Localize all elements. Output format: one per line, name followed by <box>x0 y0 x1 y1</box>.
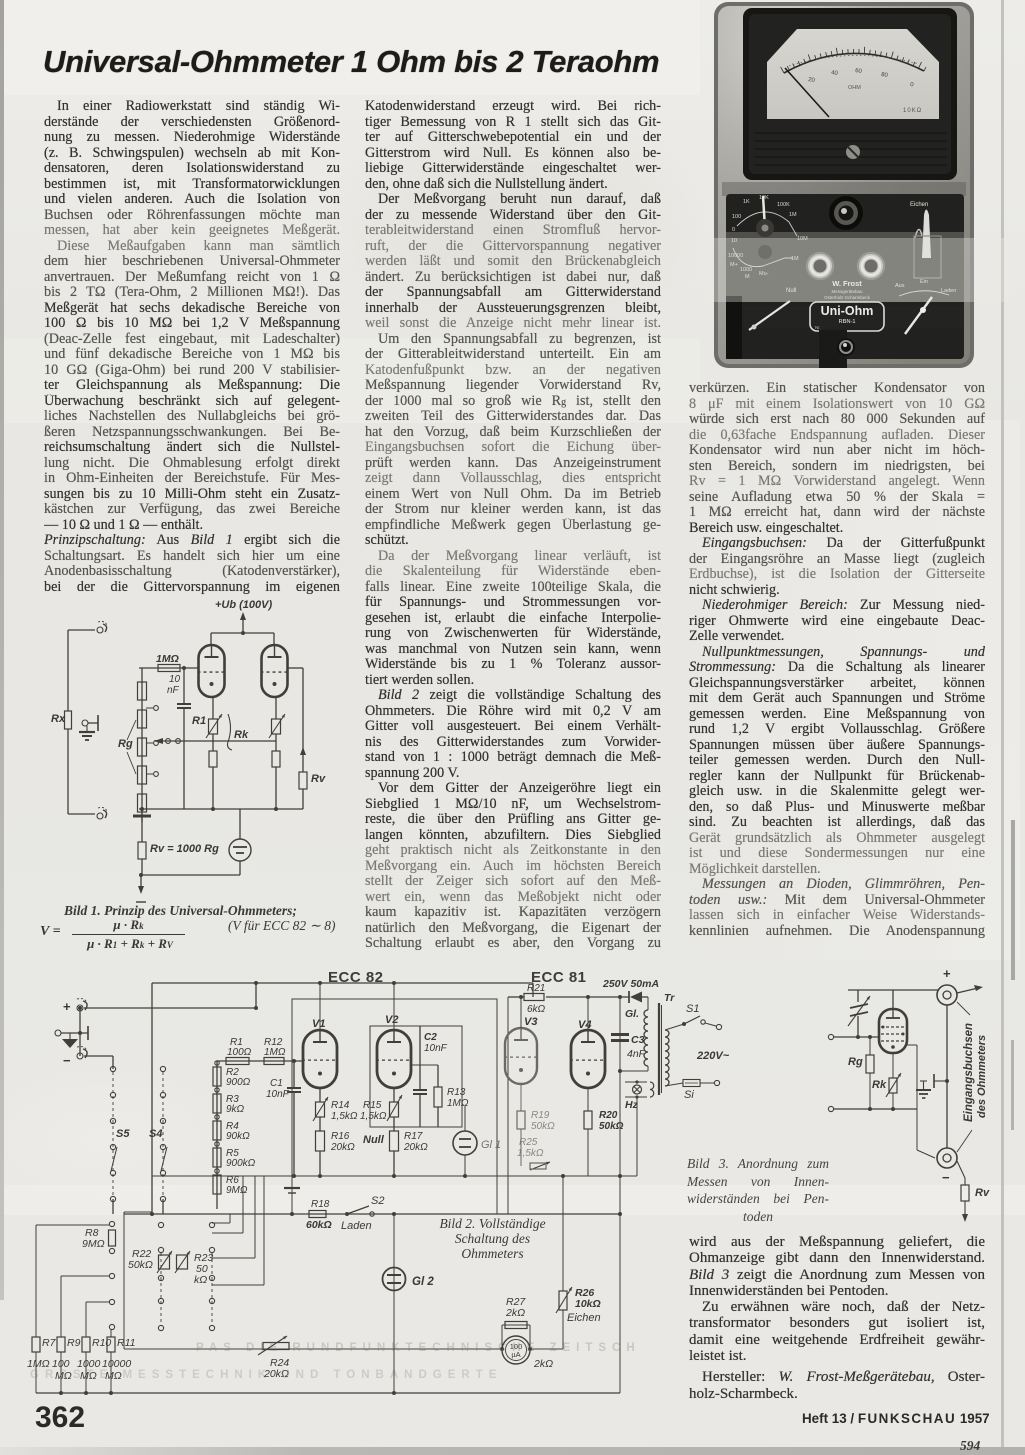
svg-text:9kΩ: 9kΩ <box>226 1104 245 1115</box>
svg-text:250V 50mA: 250V 50mA <box>602 978 659 990</box>
svg-text:R18: R18 <box>311 1199 330 1210</box>
svg-text:−: − <box>942 1170 950 1185</box>
svg-text:−: − <box>63 1053 71 1068</box>
svg-text:R13: R13 <box>447 1087 466 1098</box>
svg-text:90kΩ: 90kΩ <box>226 1131 250 1142</box>
svg-text:9MΩ: 9MΩ <box>226 1185 248 1196</box>
svg-text:Tr: Tr <box>664 992 675 1004</box>
svg-text:Eichen: Eichen <box>567 1312 601 1324</box>
svg-text:nF: nF <box>167 685 180 696</box>
svg-text:2kΩ: 2kΩ <box>505 1307 525 1319</box>
svg-text:10: 10 <box>169 674 181 685</box>
svg-text:10nF: 10nF <box>424 1043 448 1054</box>
svg-text:0: 0 <box>732 227 735 233</box>
svg-text:V2: V2 <box>385 1014 398 1026</box>
svg-text:S5: S5 <box>116 1128 130 1140</box>
svg-text:1MΩ: 1MΩ <box>156 653 179 665</box>
svg-text:Laden: Laden <box>341 1220 372 1232</box>
svg-text:Uni-Ohm: Uni-Ohm <box>821 304 874 318</box>
svg-text:+Ub (100V): +Ub (100V) <box>215 599 272 611</box>
svg-text:Gl.: Gl. <box>625 1008 639 1020</box>
svg-text:6kΩ: 6kΩ <box>527 1004 546 1015</box>
svg-text:R20: R20 <box>599 1110 618 1121</box>
svg-text:100Ω: 100Ω <box>227 1047 252 1058</box>
svg-text:C3: C3 <box>631 1034 645 1046</box>
svg-text:R15: R15 <box>363 1100 382 1111</box>
svg-text:C2: C2 <box>424 1032 437 1043</box>
svg-text:220V~: 220V~ <box>696 1050 730 1062</box>
svg-text:+: + <box>943 966 951 981</box>
svg-text:1,5kΩ: 1,5kΩ <box>360 1111 387 1122</box>
svg-text:C1: C1 <box>270 1078 283 1089</box>
svg-text:Null: Null <box>363 1134 385 1146</box>
svg-text:R21: R21 <box>527 983 545 994</box>
svg-text:Eichen: Eichen <box>910 202 928 208</box>
svg-text:20kΩ: 20kΩ <box>403 1142 428 1153</box>
svg-text:1M: 1M <box>789 212 797 218</box>
svg-text:Rv: Rv <box>311 773 326 785</box>
svg-text:V1: V1 <box>312 1018 325 1030</box>
svg-text:S1: S1 <box>686 1003 699 1015</box>
svg-text:R25: R25 <box>519 1137 538 1148</box>
svg-text:Nr.: Nr. <box>815 325 821 330</box>
svg-text:900kΩ: 900kΩ <box>226 1158 256 1169</box>
svg-text:Rx: Rx <box>51 713 66 725</box>
svg-text:10kΩ: 10kΩ <box>575 1298 601 1310</box>
svg-text:Rv: Rv <box>975 1187 990 1199</box>
svg-text:RBN-1: RBN-1 <box>839 319 856 325</box>
svg-text:Rv = 1000 Rg: Rv = 1000 Rg <box>150 843 219 855</box>
svg-text:100K: 100K <box>777 202 790 208</box>
svg-text:Gl 2: Gl 2 <box>412 1276 434 1288</box>
svg-text:10KΩ: 10KΩ <box>903 108 922 114</box>
svg-text:R1: R1 <box>192 715 206 727</box>
svg-text:R19: R19 <box>531 1110 550 1121</box>
svg-text:1K: 1K <box>743 199 750 205</box>
svg-text:S2: S2 <box>371 1195 384 1207</box>
svg-text:OHM: OHM <box>848 85 861 91</box>
svg-text:50kΩ: 50kΩ <box>128 1259 153 1271</box>
svg-text:R11: R11 <box>117 1337 135 1349</box>
svg-text:R16: R16 <box>331 1131 350 1142</box>
svg-text:100: 100 <box>732 214 741 220</box>
svg-text:R7: R7 <box>42 1337 57 1349</box>
svg-text:R9: R9 <box>67 1337 81 1349</box>
svg-text:kΩ: kΩ <box>194 1274 207 1286</box>
svg-text:R17: R17 <box>404 1131 423 1142</box>
svg-text:S4: S4 <box>149 1128 162 1140</box>
svg-text:R14: R14 <box>331 1100 350 1111</box>
svg-text:10nF: 10nF <box>266 1089 290 1100</box>
svg-text:des Ohmmeters: des Ohmmeters <box>976 1035 988 1118</box>
svg-text:Rk: Rk <box>872 1079 887 1091</box>
svg-text:4nF: 4nF <box>627 1048 646 1060</box>
svg-text:Eingangsbuchsen: Eingangsbuchsen <box>963 1023 975 1122</box>
svg-text:900Ω: 900Ω <box>226 1077 251 1088</box>
svg-text:1MΩ: 1MΩ <box>447 1098 469 1109</box>
svg-text:60kΩ: 60kΩ <box>306 1219 332 1231</box>
svg-text:V3: V3 <box>524 1016 537 1028</box>
svg-text:Rk: Rk <box>234 729 249 741</box>
svg-text:1MΩ: 1MΩ <box>264 1047 286 1058</box>
svg-text:Rg: Rg <box>848 1056 863 1068</box>
svg-text:20kΩ: 20kΩ <box>330 1142 355 1153</box>
svg-text:Rg: Rg <box>118 738 133 750</box>
svg-text:+: + <box>63 999 71 1014</box>
svg-text:Gl 1: Gl 1 <box>481 1139 501 1151</box>
svg-text:9MΩ: 9MΩ <box>82 1238 105 1250</box>
svg-text:50kΩ: 50kΩ <box>531 1121 555 1132</box>
svg-text:Si: Si <box>684 1089 694 1101</box>
svg-text:1,5kΩ: 1,5kΩ <box>331 1111 358 1122</box>
svg-text:R10: R10 <box>92 1337 111 1349</box>
